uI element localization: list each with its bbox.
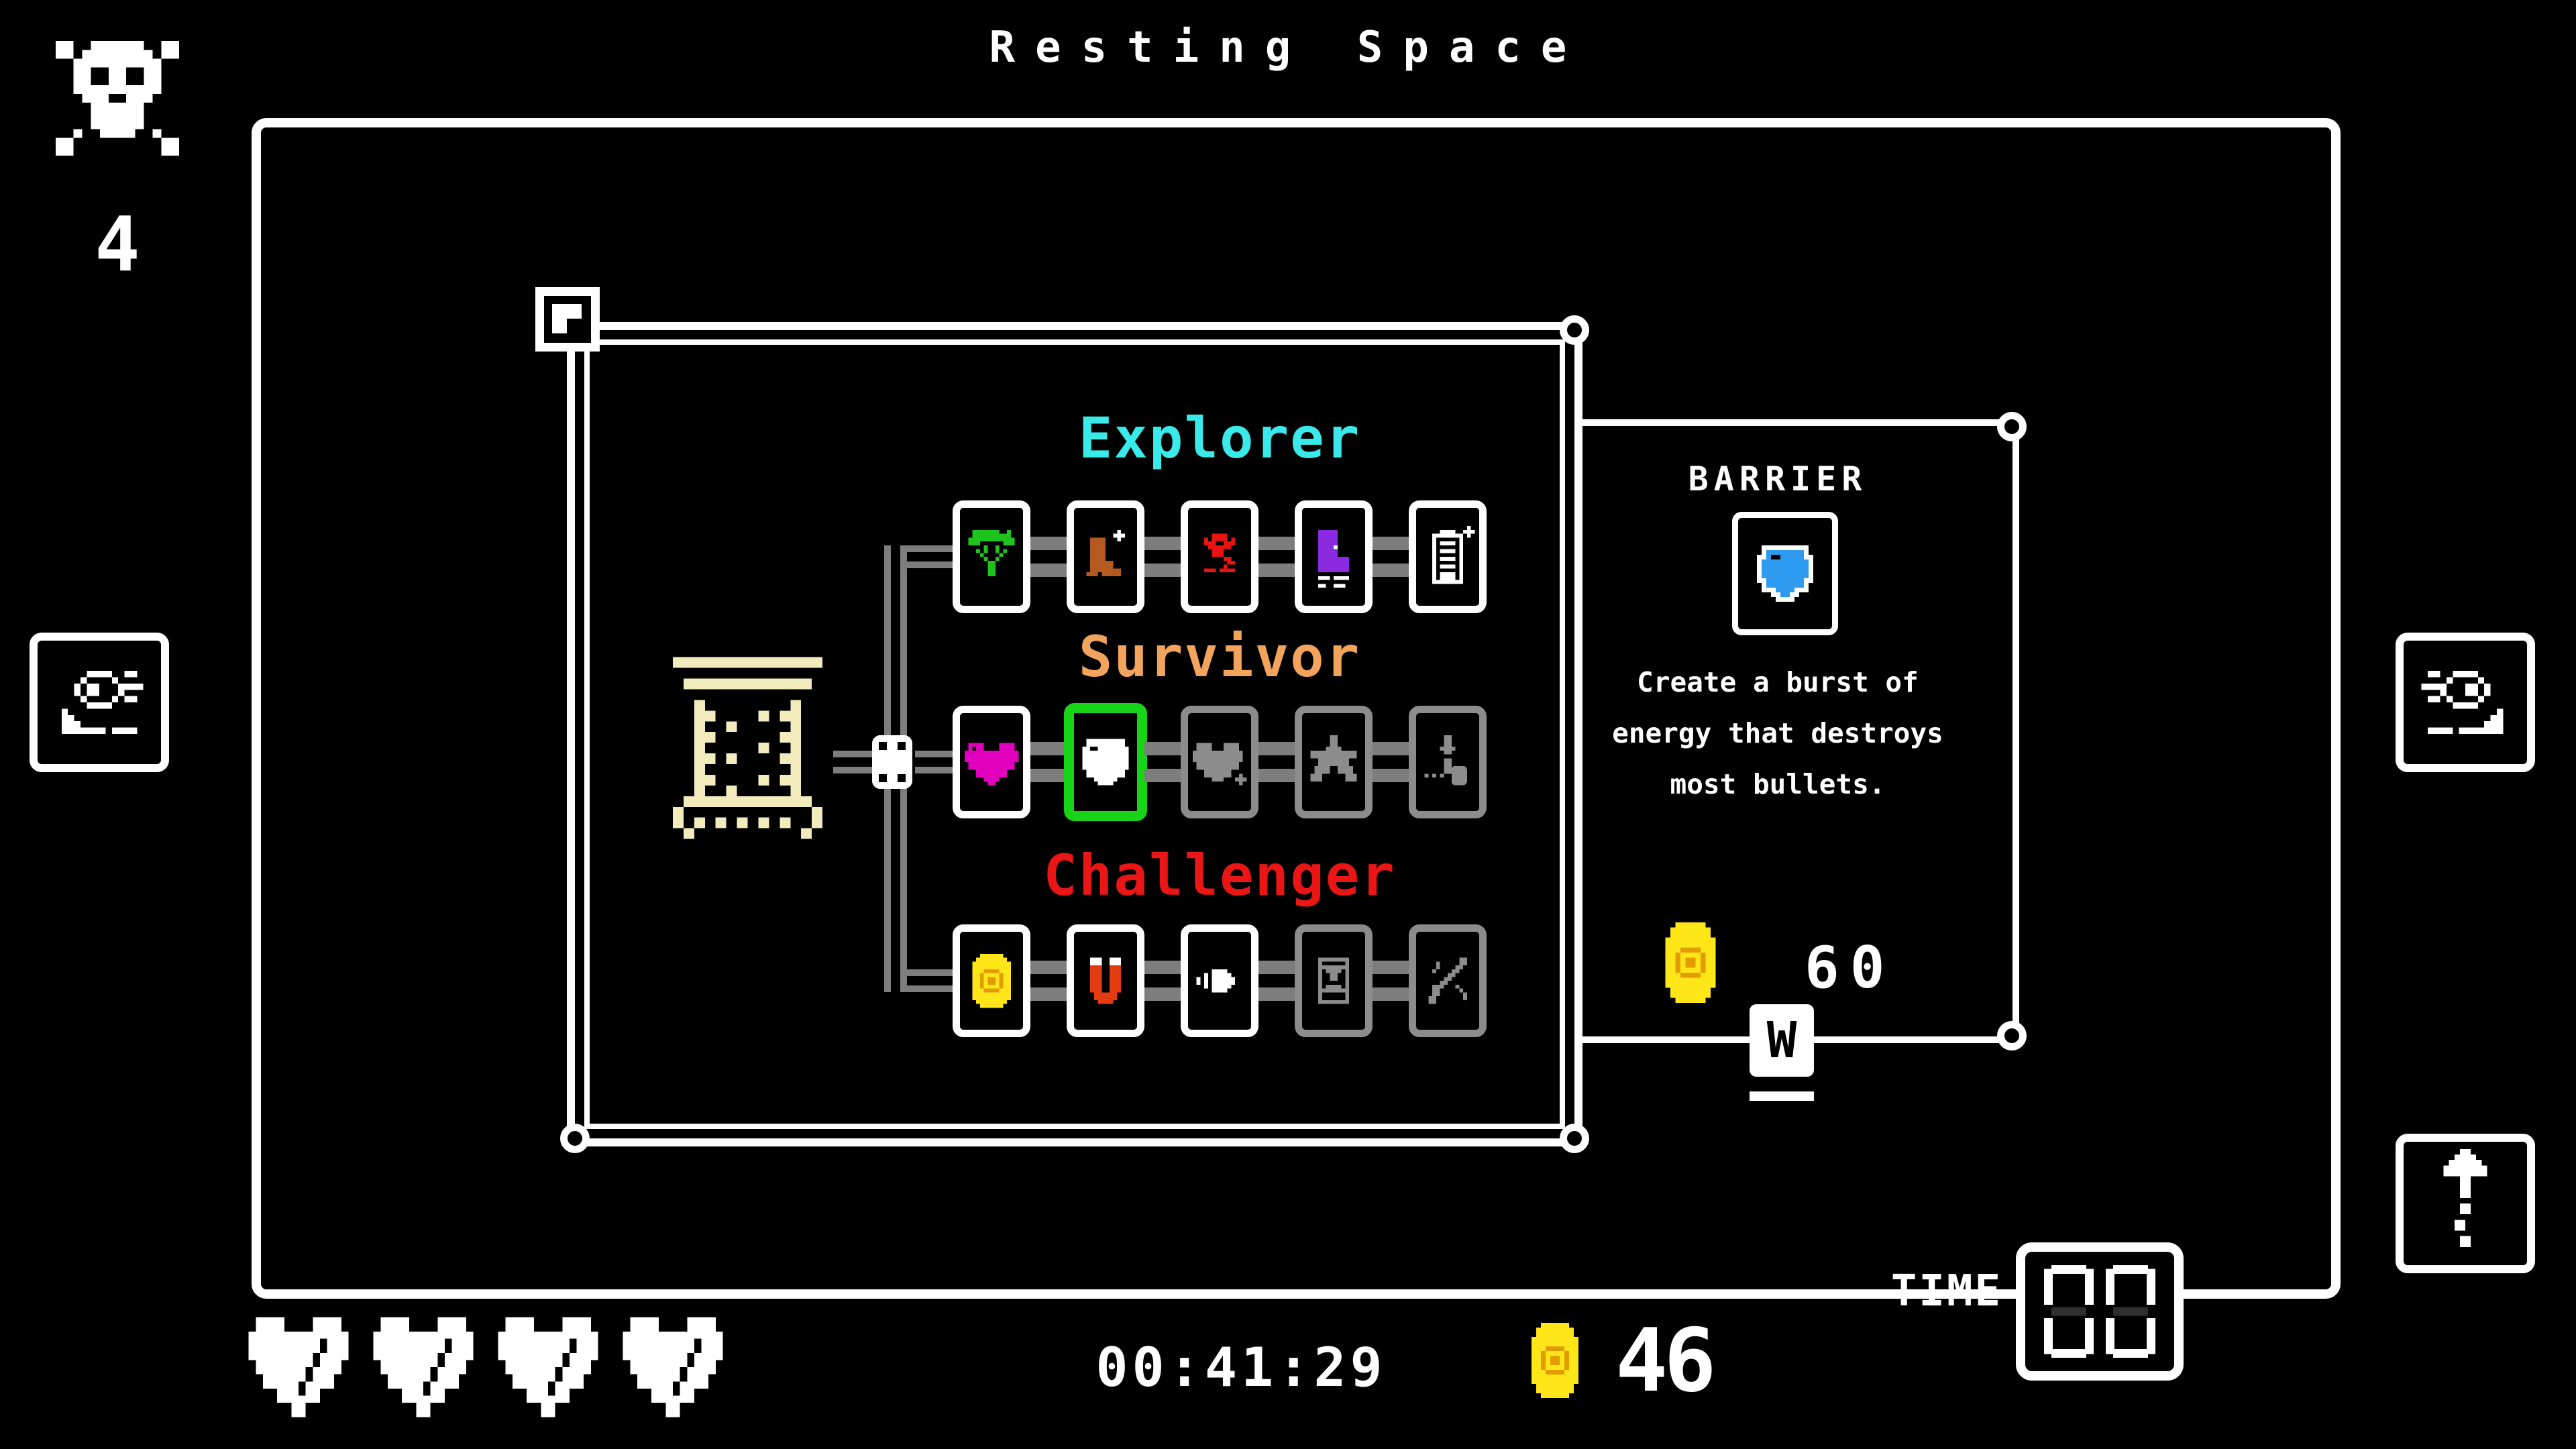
panel-pin-icon — [535, 287, 600, 352]
track-connector — [1258, 924, 1295, 1037]
nav-room-right-button[interactable] — [2396, 633, 2535, 772]
branch-title-explorer: Explorer — [953, 405, 1487, 471]
magnet-icon — [1075, 950, 1136, 1012]
track-connector — [1258, 500, 1295, 613]
barrier-shield-icon — [1075, 731, 1136, 793]
track-junction — [872, 730, 915, 794]
track — [833, 767, 872, 773]
skill-hourglass-locked[interactable] — [1295, 924, 1373, 1037]
track-connector — [1258, 706, 1295, 818]
key-hint-underline — [1750, 1091, 1814, 1101]
track — [904, 561, 953, 568]
battery-plus-icon — [1417, 526, 1479, 588]
corner-node — [1997, 1021, 2027, 1051]
track-connector — [1144, 924, 1181, 1037]
skill-dash-boot[interactable] — [1067, 500, 1144, 613]
branch-title-survivor: Survivor — [953, 624, 1487, 690]
track — [904, 545, 953, 552]
coin-icon — [961, 950, 1022, 1012]
skate-icon — [1303, 526, 1364, 588]
skill-sword-locked[interactable] — [1409, 924, 1487, 1037]
skill-row-survivor — [953, 706, 1487, 818]
track-connector — [1144, 500, 1181, 613]
track — [833, 751, 872, 757]
track-connector — [1373, 500, 1409, 613]
skill-barrier-shield-selected[interactable] — [1064, 703, 1147, 821]
skill-heart[interactable] — [953, 706, 1030, 818]
death-count: 4 — [47, 201, 188, 288]
track-connector — [1373, 706, 1409, 818]
track-connector — [1144, 706, 1181, 818]
revive-icon — [1417, 731, 1479, 793]
skill-scout-drone[interactable] — [1181, 500, 1258, 613]
sword-icon — [1417, 950, 1479, 1012]
track-connector — [1030, 500, 1067, 613]
skill-skate[interactable] — [1295, 500, 1373, 613]
nav-room-up-button[interactable] — [2396, 1134, 2535, 1273]
skill-coin[interactable] — [953, 924, 1030, 1037]
skill-battery-plus[interactable] — [1409, 500, 1487, 613]
bullet-icon — [1189, 950, 1250, 1012]
blue-shield-icon — [1732, 512, 1838, 635]
page-title: Resting Space — [785, 23, 1791, 72]
track-connector — [1030, 706, 1067, 818]
key-hint-w: W — [1750, 1004, 1814, 1077]
door-icon[interactable] — [662, 653, 833, 875]
corner-node — [1560, 1124, 1589, 1153]
run-timer: 00:41:29 — [1053, 1336, 1429, 1399]
corner-node — [1997, 412, 2027, 441]
detail-cost: 60 — [1805, 934, 1896, 1002]
dash-boot-icon — [1075, 526, 1136, 588]
corner-node — [560, 1124, 590, 1153]
skill-row-challenger — [953, 924, 1487, 1037]
heart-life-icon — [366, 1307, 480, 1428]
seven-segment-digit — [2105, 1265, 2156, 1358]
heart-life-icon — [241, 1307, 356, 1428]
skill-heart-plus-locked[interactable] — [1181, 706, 1258, 818]
detail-panel: BARRIER Create a burst of energy that de… — [1536, 419, 2019, 1043]
detail-description: Create a burst of energy that destroys m… — [1580, 657, 1976, 810]
time-display — [2016, 1242, 2184, 1381]
skill-magnet[interactable] — [1067, 924, 1144, 1037]
scout-drone-icon — [1189, 526, 1250, 588]
track — [915, 751, 953, 757]
skill-row-explorer — [953, 500, 1487, 613]
time-label: TIME — [1811, 1267, 2002, 1316]
branch-title-challenger: Challenger — [953, 843, 1487, 908]
hourglass-icon — [1303, 950, 1364, 1012]
coin-count: 46 — [1615, 1309, 1713, 1411]
heart-life-icon — [491, 1307, 605, 1428]
skill-revive-locked[interactable] — [1409, 706, 1487, 818]
coin-icon — [1650, 909, 1731, 1016]
star-icon — [1303, 731, 1364, 793]
detail-title: BARRIER — [1543, 460, 2012, 498]
seven-segment-digit — [2043, 1265, 2094, 1358]
hearts-bar — [241, 1307, 730, 1428]
ship-right-icon — [2415, 652, 2516, 753]
skill-tree-panel: Explorer — [567, 322, 1582, 1146]
track — [904, 985, 953, 992]
track-connector — [1030, 924, 1067, 1037]
skull-icon — [47, 32, 188, 173]
up-arrow-icon — [2422, 1149, 2509, 1258]
skill-star-locked[interactable] — [1295, 706, 1373, 818]
skill-parachute[interactable] — [953, 500, 1030, 613]
heart-life-icon — [616, 1307, 730, 1428]
track-connector — [1373, 924, 1409, 1037]
heart-icon — [961, 731, 1022, 793]
parachute-icon — [961, 526, 1022, 588]
ship-left-icon — [49, 652, 150, 753]
track — [904, 969, 953, 976]
skill-bullet[interactable] — [1181, 924, 1258, 1037]
nav-room-left-button[interactable] — [30, 633, 169, 772]
coin-icon — [1517, 1303, 1593, 1418]
corner-node — [1560, 315, 1589, 345]
track — [915, 767, 953, 773]
heart-plus-icon — [1189, 731, 1250, 793]
